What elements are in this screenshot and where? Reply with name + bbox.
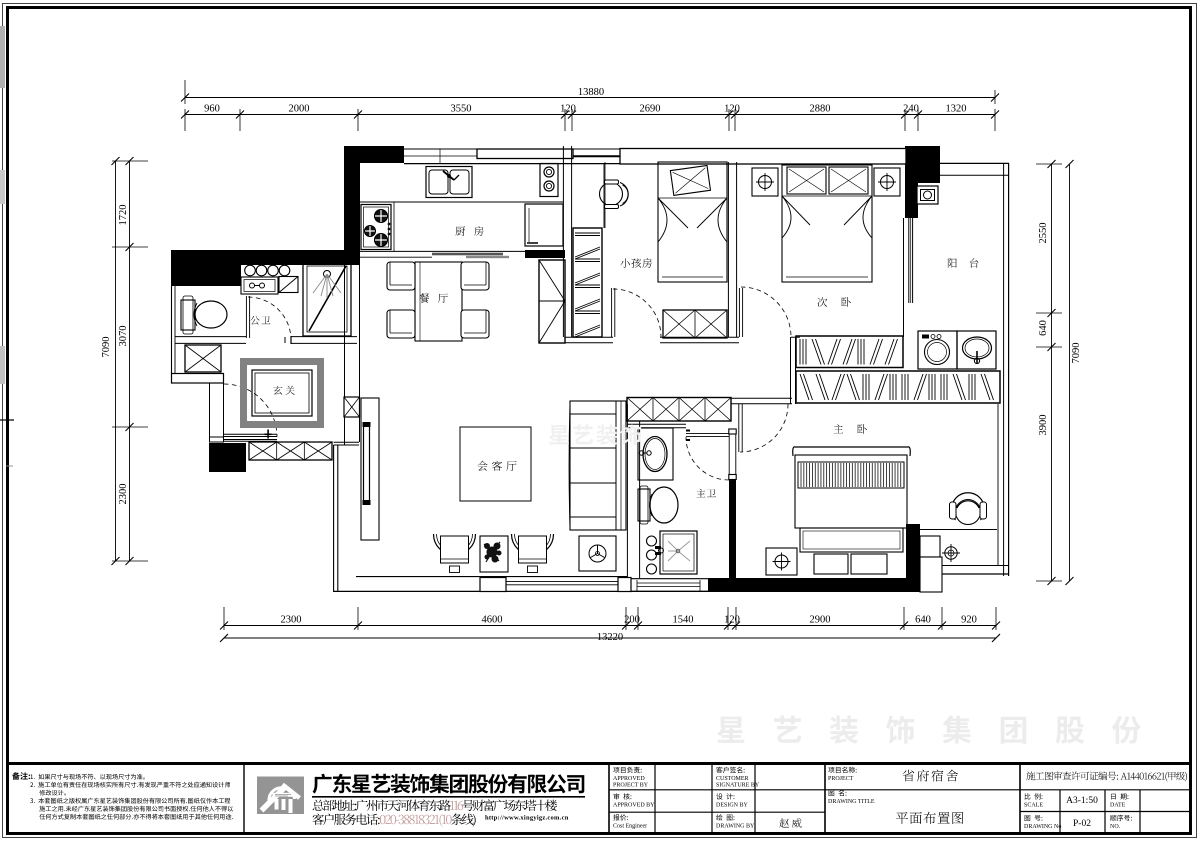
svg-text:2900: 2900: [810, 615, 831, 626]
svg-text:13220: 13220: [597, 632, 623, 643]
svg-text:13880: 13880: [578, 87, 604, 98]
svg-text:120: 120: [560, 104, 576, 115]
svg-text:120: 120: [724, 615, 740, 626]
svg-text:APPROVED BY: APPROVED BY: [613, 803, 655, 809]
svg-text:3900: 3900: [1038, 415, 1049, 436]
svg-text:P-02: P-02: [1073, 819, 1091, 829]
svg-text:DESIGN BY: DESIGN BY: [716, 803, 749, 809]
svg-text:4600: 4600: [482, 615, 503, 626]
svg-text:2300: 2300: [118, 484, 129, 505]
svg-text:120: 120: [724, 104, 740, 115]
svg-text:SIGNATURE BY: SIGNATURE BY: [716, 783, 760, 789]
svg-text:7090: 7090: [101, 337, 112, 358]
svg-text:APPROVED: APPROVED: [613, 776, 645, 782]
svg-text:2690: 2690: [640, 104, 661, 115]
svg-text:240: 240: [903, 104, 919, 115]
svg-text:640: 640: [1038, 320, 1049, 336]
svg-text:1540: 1540: [673, 615, 694, 626]
svg-text:NO.: NO.: [1110, 824, 1121, 830]
svg-text:200: 200: [624, 615, 640, 626]
svg-text:CUSTOMER: CUSTOMER: [716, 776, 749, 782]
svg-text:1320: 1320: [946, 104, 967, 115]
svg-text:2880: 2880: [810, 104, 831, 115]
svg-text:PROJECT: PROJECT: [828, 776, 854, 782]
svg-text:Cost Engineer: Cost Engineer: [613, 824, 647, 830]
svg-text:3070: 3070: [118, 326, 129, 347]
svg-text:http://www.xingyigz.com.cn: http://www.xingyigz.com.cn: [485, 815, 569, 822]
svg-text:1720: 1720: [118, 205, 129, 226]
svg-text:2000: 2000: [289, 104, 310, 115]
svg-text:A3-1:50: A3-1:50: [1066, 796, 1098, 806]
svg-text:3550: 3550: [451, 104, 472, 115]
svg-text:SCALE: SCALE: [1024, 803, 1043, 809]
svg-text:640: 640: [915, 615, 931, 626]
svg-text:7090: 7090: [1071, 343, 1082, 364]
svg-text:2550: 2550: [1038, 223, 1049, 244]
svg-text:2300: 2300: [281, 615, 302, 626]
svg-text:PROJECT BY: PROJECT BY: [613, 783, 649, 789]
svg-text:DATE: DATE: [1110, 803, 1126, 809]
svg-text:DRAWING No: DRAWING No: [1024, 824, 1061, 830]
svg-text:DRAWING BY: DRAWING BY: [716, 824, 755, 830]
svg-text:960: 960: [204, 104, 220, 115]
svg-text:DRAWING TITLE: DRAWING TITLE: [828, 799, 875, 805]
svg-text:920: 920: [961, 615, 977, 626]
